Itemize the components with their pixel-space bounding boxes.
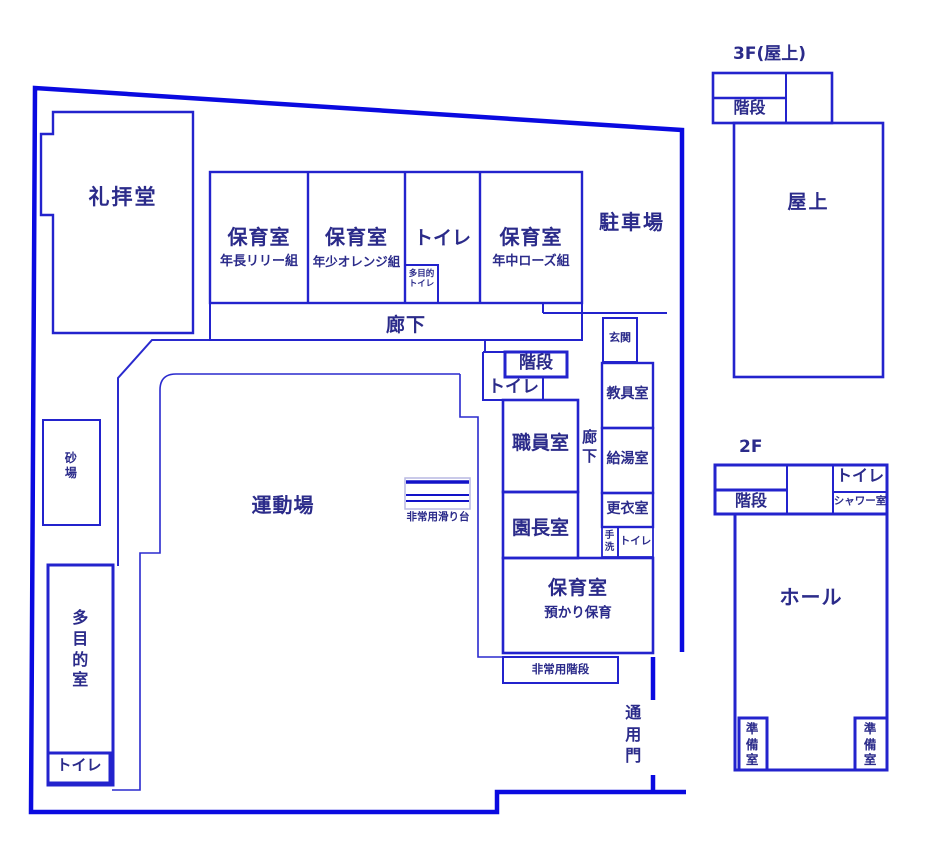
area-label-rooftop: 屋上 <box>734 192 883 213</box>
area-label-corridor: 廊下 <box>220 315 592 336</box>
area-label-parking: 駐車場 <box>584 211 680 233</box>
room-label-toilet-mid: トイレ <box>484 378 543 397</box>
room-label-stairs-1f: 階段 <box>505 354 567 373</box>
area-label-service-gate: 通用門 <box>624 702 642 767</box>
room-label-prep-right: 準備室 <box>863 721 877 768</box>
room-label-nursery-junior: 保育室 <box>308 226 405 248</box>
label-emergency-slide: 非常用滑り台 <box>393 512 483 524</box>
room-label-staff: 職員室 <box>503 433 578 454</box>
room-label-kitchen: 給湯室 <box>602 452 653 467</box>
room-label-multipurpose: 多目的室 <box>71 608 89 691</box>
room-label-prep-left: 準備室 <box>745 721 759 768</box>
room-label-mp-toilet-line2: トイレ <box>406 280 437 289</box>
room-label-stairs-3f: 階段 <box>713 99 786 117</box>
room-label-mp-toilet-line1: 多目的 <box>406 270 437 279</box>
room-label-changing: 更衣室 <box>602 502 653 517</box>
emergency-slide-icon <box>405 478 470 509</box>
floor2-walls <box>715 465 887 770</box>
room-sublabel-nursery-aftercare: 預かり保育 <box>503 606 653 621</box>
room-label-emergency-stairs: 非常用階段 <box>503 663 618 676</box>
room-label-chapel: 礼拝堂 <box>53 186 193 209</box>
area-label-sandbox: 砂場 <box>64 451 78 481</box>
room-label-stairs-2f: 階段 <box>715 492 787 510</box>
room-label-nursery-senior: 保育室 <box>210 226 308 248</box>
room-label-nursery-middle: 保育室 <box>480 226 582 248</box>
room-label-entrance: 玄関 <box>603 332 637 344</box>
floor3-walls <box>713 73 883 377</box>
room-label-principal: 園長室 <box>503 518 578 539</box>
room-label-hall: ホール <box>735 586 887 608</box>
room-label-handwash: 手洗 <box>604 530 615 554</box>
playground-fence <box>112 340 503 790</box>
kindergarten-floor-plan: 礼拝堂 保育室 年長リリー組 保育室 年少オレンジ組 トイレ 多目的 トイレ 保… <box>0 0 926 860</box>
floor3-title: 3F(屋上) <box>733 45 806 64</box>
room-label-teaching: 教具室 <box>602 387 653 402</box>
area-label-corridor-vertical: 廊下 <box>581 428 598 466</box>
room-label-shower: シャワー室 <box>829 496 891 508</box>
floor-plan-drawing <box>0 0 926 860</box>
room-sublabel-nursery-junior: 年少オレンジ組 <box>301 255 412 269</box>
room-label-toilet-2f: トイレ <box>833 467 887 485</box>
room-sublabel-nursery-middle: 年中ローズ組 <box>477 255 585 269</box>
room-label-nursery-aftercare: 保育室 <box>503 578 653 599</box>
floor2-title: 2F <box>739 438 762 457</box>
room-label-toilet-bottomleft: トイレ <box>49 757 109 774</box>
room-label-toilet-small: トイレ <box>618 536 653 548</box>
room-label-toilet-top: トイレ <box>405 228 480 249</box>
room-sublabel-nursery-senior: 年長リリー組 <box>204 255 314 269</box>
area-label-playground: 運動場 <box>228 494 338 516</box>
